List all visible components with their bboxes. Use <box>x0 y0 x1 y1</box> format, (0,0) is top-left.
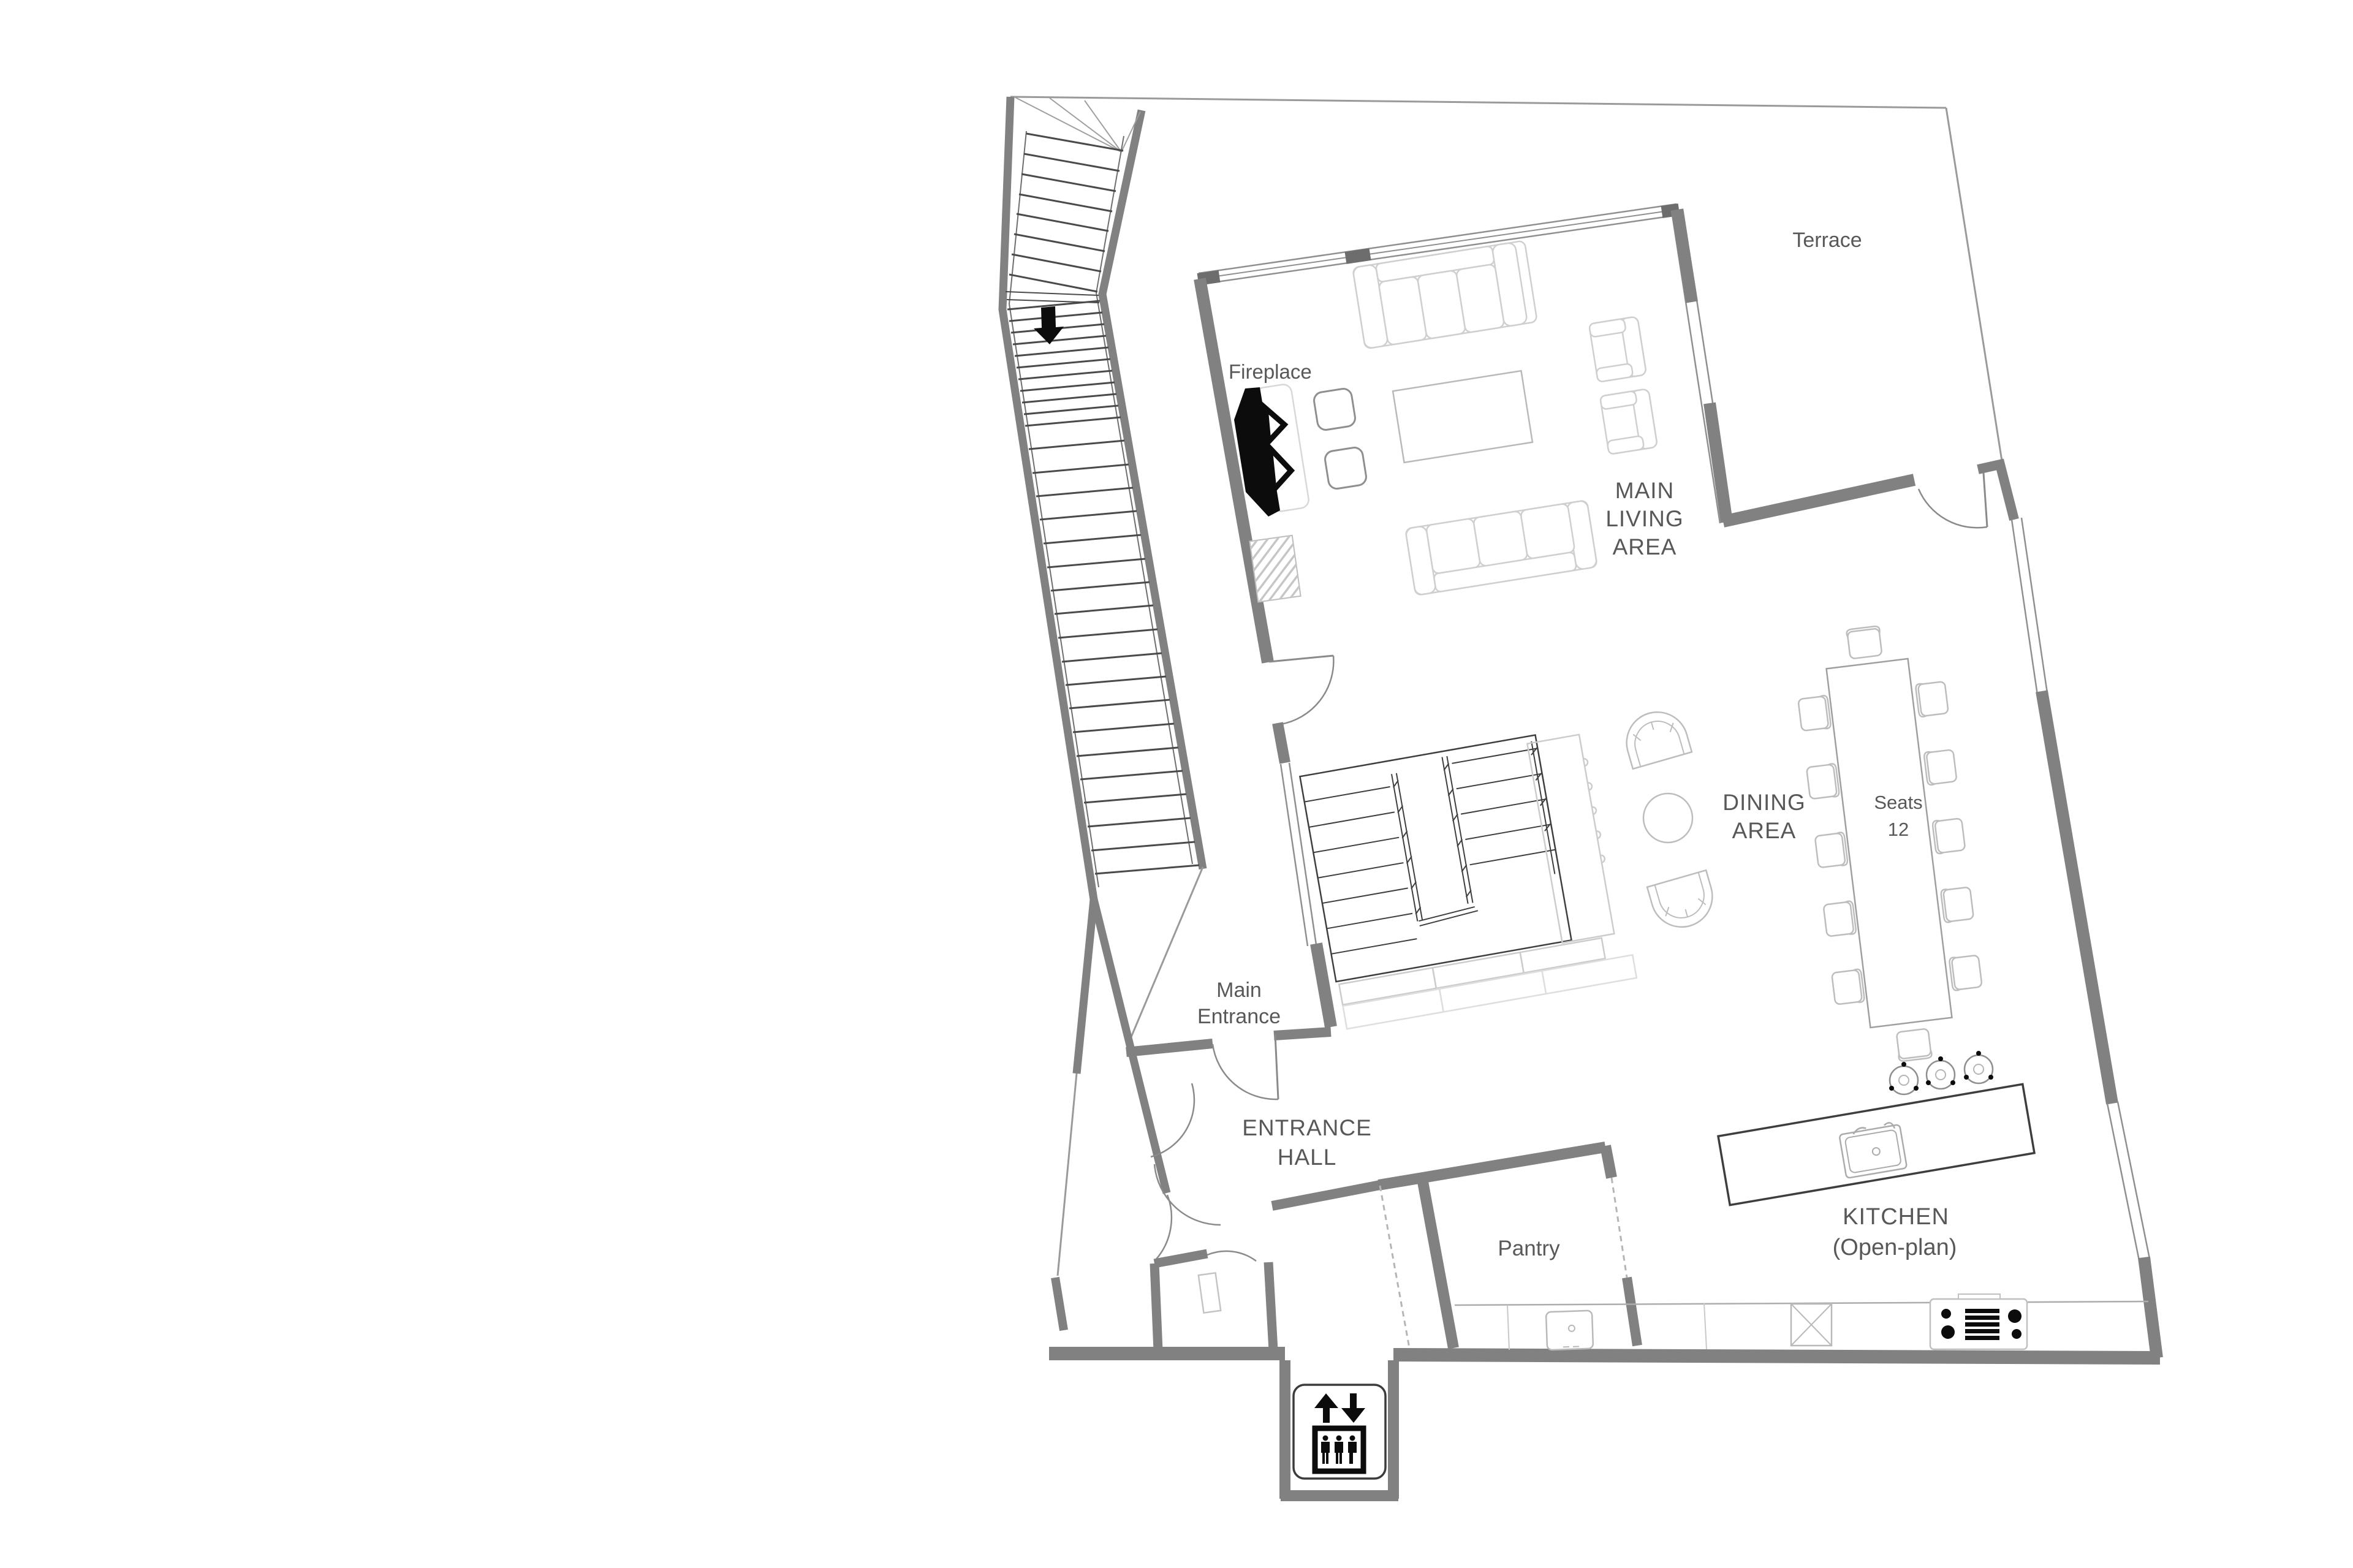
svg-text:DINING: DINING <box>1722 790 1806 815</box>
svg-text:12: 12 <box>1888 819 1909 840</box>
svg-text:Entrance: Entrance <box>1197 1005 1281 1028</box>
svg-text:AREA: AREA <box>1613 534 1677 559</box>
svg-text:HALL: HALL <box>1278 1145 1337 1170</box>
svg-text:KITCHEN: KITCHEN <box>1843 1204 1949 1230</box>
svg-text:LIVING: LIVING <box>1605 506 1683 531</box>
svg-text:Main: Main <box>1216 979 1262 1002</box>
svg-text:MAIN: MAIN <box>1615 478 1675 503</box>
svg-text:Terrace: Terrace <box>1792 229 1862 252</box>
svg-text:Seats: Seats <box>1874 792 1922 813</box>
svg-text:ENTRANCE: ENTRANCE <box>1242 1115 1372 1140</box>
svg-text:AREA: AREA <box>1732 818 1797 843</box>
svg-text:Pantry: Pantry <box>1498 1237 1560 1260</box>
svg-text:(Open-plan): (Open-plan) <box>1833 1235 1957 1260</box>
svg-text:Fireplace: Fireplace <box>1229 360 1312 383</box>
